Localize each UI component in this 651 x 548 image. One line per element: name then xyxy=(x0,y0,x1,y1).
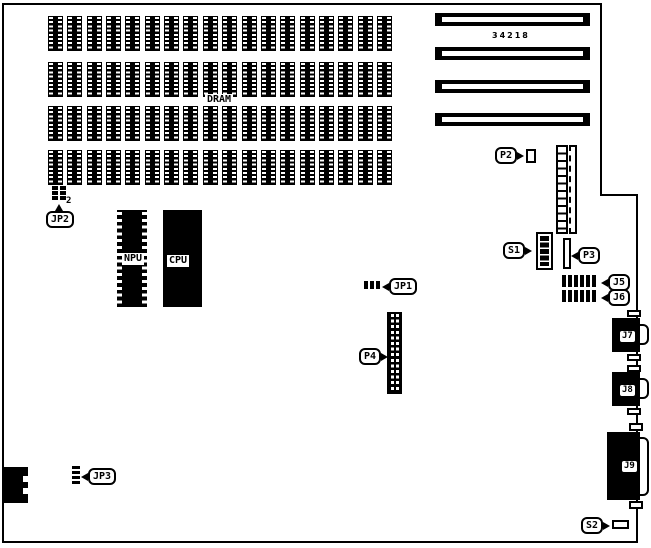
dram-chip xyxy=(338,150,353,185)
dram-chip xyxy=(48,106,63,141)
dram-chip xyxy=(319,16,334,51)
dram-chip xyxy=(106,106,121,141)
dram-chip xyxy=(125,62,140,97)
dram-chip xyxy=(125,16,140,51)
dram-chip xyxy=(48,62,63,97)
dram-chip xyxy=(280,62,295,97)
j9-top-tab xyxy=(629,423,643,431)
dram-chip xyxy=(222,150,237,185)
expansion-slot-opening xyxy=(442,17,583,22)
dram-chip xyxy=(125,150,140,185)
j5-connector xyxy=(562,275,598,287)
p3-callout: P3 xyxy=(578,247,600,264)
dram-chip xyxy=(183,150,198,185)
dram-chip xyxy=(377,106,392,141)
dram-chip xyxy=(300,150,315,185)
dram-chip xyxy=(338,106,353,141)
expansion-slot xyxy=(435,80,590,93)
dram-chip xyxy=(164,150,179,185)
dram-chip xyxy=(377,16,392,51)
p4-pin-header xyxy=(387,312,402,394)
dram-chip xyxy=(48,16,63,51)
dram-chip xyxy=(67,150,82,185)
dram-chip xyxy=(67,106,82,141)
keyboard-connector xyxy=(3,467,28,503)
dram-chip xyxy=(261,106,276,141)
dram-chip xyxy=(377,150,392,185)
dram-label: DRAM xyxy=(205,94,233,106)
dram-chip xyxy=(319,106,334,141)
s2-connector xyxy=(612,520,629,529)
dram-chip xyxy=(261,62,276,97)
dram-chip xyxy=(203,106,218,141)
jp2-jumper-block xyxy=(52,186,67,201)
jp3-connector xyxy=(72,466,80,484)
dram-chip xyxy=(87,150,102,185)
dram-chip xyxy=(106,150,121,185)
expansion-slot-opening xyxy=(442,117,583,122)
dram-chip xyxy=(87,62,102,97)
p3-connector xyxy=(563,238,571,269)
dram-chip xyxy=(242,62,257,97)
jp1-callout: JP1 xyxy=(389,278,417,295)
p2-connector xyxy=(526,149,536,163)
j7-top-tab xyxy=(627,310,641,317)
j6-connector xyxy=(562,290,598,302)
dram-chip xyxy=(164,62,179,97)
dram-chip xyxy=(87,106,102,141)
npu-label: NPU xyxy=(122,253,144,265)
jp2-callout: JP2 xyxy=(46,211,74,228)
socket-strip-pins xyxy=(556,145,568,234)
dram-chip xyxy=(358,106,373,141)
dram-chip xyxy=(145,62,160,97)
expansion-slot xyxy=(435,113,590,126)
expansion-slot xyxy=(435,47,590,60)
dram-chip xyxy=(183,106,198,141)
dram-chip xyxy=(358,62,373,97)
dram-chip xyxy=(203,150,218,185)
s1-callout: S1 xyxy=(503,242,525,259)
socket-strip-connector xyxy=(556,145,576,234)
jp3-callout: JP3 xyxy=(88,468,116,485)
dram-chip xyxy=(261,150,276,185)
dram-chip xyxy=(67,62,82,97)
dram-chip xyxy=(300,106,315,141)
dram-chip xyxy=(242,16,257,51)
dram-chip xyxy=(183,62,198,97)
dram-chip xyxy=(300,62,315,97)
dram-chip xyxy=(203,16,218,51)
part-number: 34218 xyxy=(492,31,530,40)
dram-chip xyxy=(222,16,237,51)
expansion-slot-opening xyxy=(442,51,583,56)
expansion-slot xyxy=(435,13,590,26)
j7-bottom-tab xyxy=(627,354,641,361)
j7-label: J7 xyxy=(619,330,636,343)
dram-chip xyxy=(261,16,276,51)
j8-top-tab xyxy=(627,365,641,372)
dram-chip xyxy=(222,106,237,141)
dram-chip xyxy=(319,62,334,97)
dram-chip xyxy=(242,106,257,141)
dram-chip xyxy=(280,150,295,185)
dram-chip xyxy=(358,150,373,185)
dram-chip xyxy=(183,16,198,51)
dram-chip xyxy=(338,62,353,97)
j8-label: J8 xyxy=(619,384,636,397)
dram-chip xyxy=(145,16,160,51)
dram-chip xyxy=(319,150,334,185)
dram-chip xyxy=(358,16,373,51)
dram-chip xyxy=(125,106,140,141)
p4-callout: P4 xyxy=(359,348,381,365)
socket-strip-body xyxy=(569,145,577,234)
expansion-slot-opening xyxy=(442,84,583,89)
dram-chip xyxy=(280,106,295,141)
jp1-connector xyxy=(364,281,382,289)
j8-bottom-tab xyxy=(627,408,641,415)
dram-chip xyxy=(67,16,82,51)
dram-chip xyxy=(48,150,63,185)
dram-chip xyxy=(145,106,160,141)
p2-callout: P2 xyxy=(495,147,517,164)
jp2-pin-number: 2 xyxy=(66,196,71,206)
dram-chip xyxy=(106,16,121,51)
dram-chip xyxy=(203,62,218,97)
cpu-label: CPU xyxy=(167,255,189,267)
dram-chip xyxy=(222,62,237,97)
j6-callout: J6 xyxy=(608,289,630,306)
motherboard-diagram: DRAM NPU CPU 34218 P2 S1 P3 J5 J6 JP1 P4… xyxy=(0,0,651,548)
dram-chip xyxy=(87,16,102,51)
j9-bottom-tab xyxy=(629,501,643,509)
s2-callout: S2 xyxy=(581,517,603,534)
s1-dip-switch xyxy=(536,232,553,270)
dram-chip xyxy=(377,62,392,97)
dram-chip xyxy=(242,150,257,185)
dram-chip xyxy=(280,16,295,51)
dram-chip xyxy=(338,16,353,51)
j9-label: J9 xyxy=(621,460,638,473)
dram-chip xyxy=(106,62,121,97)
dram-chip xyxy=(145,150,160,185)
dram-chip xyxy=(164,106,179,141)
dram-chip xyxy=(164,16,179,51)
dram-chip xyxy=(300,16,315,51)
